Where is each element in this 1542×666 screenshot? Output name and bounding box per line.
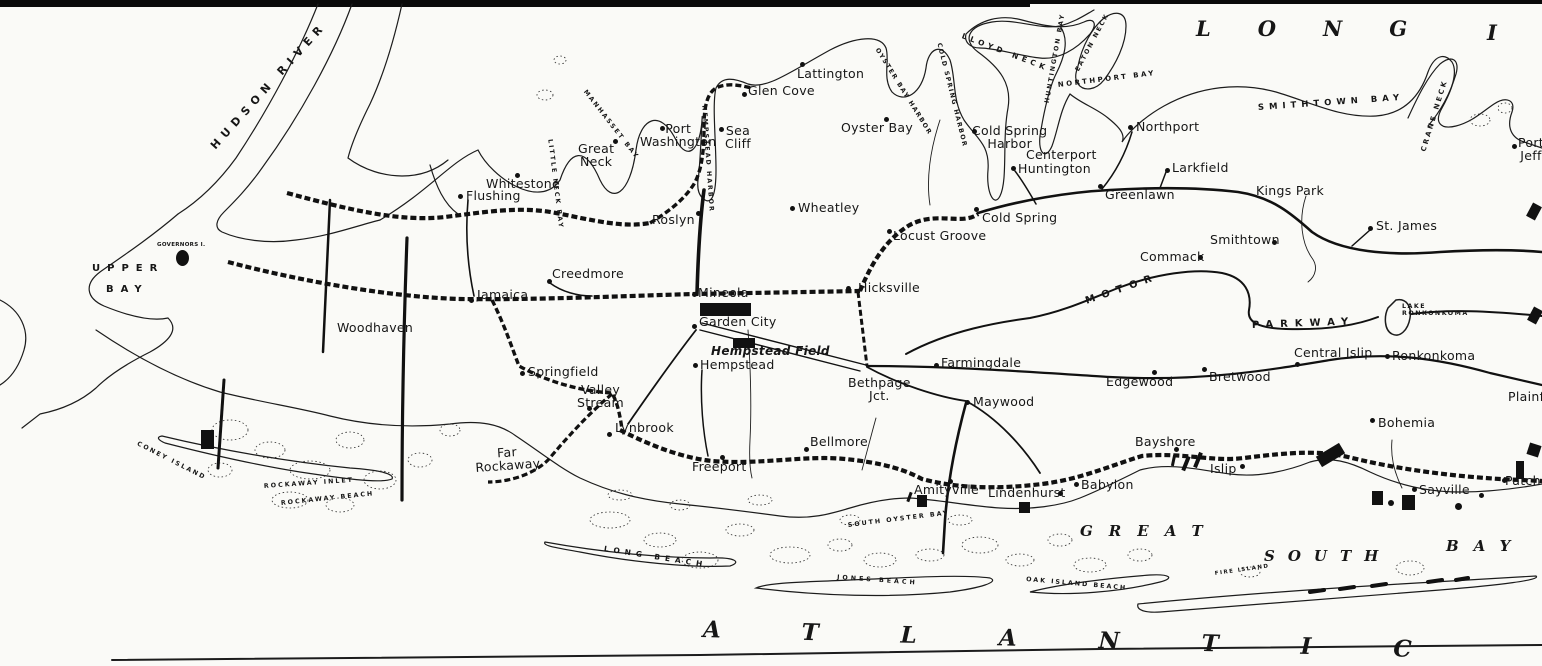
town-dot-locust-grove [887, 229, 892, 234]
map-label-central-islip: Central Islip [1294, 346, 1372, 359]
map-label-oyster-bay: Oyster Bay [841, 121, 913, 134]
map-label-springfield: Springfield [528, 365, 599, 378]
town-dot-northport [1128, 125, 1133, 130]
map-label-bellmore: Bellmore [810, 435, 868, 448]
marker-sayville-circle-1 [1388, 500, 1394, 506]
town-dot-whitestone [515, 173, 520, 178]
marker-sayville-block-2 [1402, 495, 1415, 510]
map-label-cold-spring: Cold Spring [982, 211, 1057, 224]
map-label-garden-city: Garden City [699, 315, 777, 328]
town-dot-cold-spring-harbor [972, 129, 977, 134]
town-dot-cold-spring [974, 207, 979, 212]
map-label-lake-ronkonkoma: LAKE RONKONKOMA [1402, 304, 1469, 317]
marker-governors-island-blob [176, 250, 189, 266]
town-dot-amityville [948, 479, 953, 484]
map-label-whitestone: Whitestone [486, 177, 560, 190]
map-label-lattington: Lattington [797, 67, 864, 80]
town-dot-maywood [965, 400, 970, 405]
map-label-kings-park: Kings Park [1256, 184, 1324, 197]
map-label-wheatley: Wheatley [798, 201, 860, 214]
marker-sayville-circle-2 [1455, 503, 1462, 510]
town-dot-lynbrook [607, 432, 612, 437]
map-label-islip: Islip [1210, 462, 1237, 475]
map-label-governors-island: GOVERNORS I. [157, 243, 205, 249]
map-label-island-title-i: I [1487, 22, 1497, 44]
town-dot-smithtown [1272, 240, 1277, 245]
town-dot-central-islip [1295, 362, 1300, 367]
map-label-upper-bay-2: BAY [106, 285, 149, 296]
town-dot-wheatley [790, 206, 795, 211]
map-label-commack: Commack [1140, 250, 1205, 263]
map-label-far-rockaway: Far Rockaway [474, 443, 541, 474]
map-label-lynbrook: Lynbrook [615, 421, 674, 434]
town-dot-bohemia [1370, 418, 1375, 423]
town-dot-commack [1198, 255, 1203, 260]
town-dot-mineola [692, 292, 697, 297]
long-island-map: FlushingWhitestoneGreat NeckPort Washing… [0, 0, 1542, 666]
marker-patchogue-mark [1516, 461, 1524, 479]
town-dot-hempstead [693, 363, 698, 368]
marker-coney-island-field [201, 430, 214, 449]
map-label-upper-bay-1: UPPER [92, 264, 164, 275]
map-label-south: SOUTH [1264, 549, 1391, 565]
town-dot-sea-cliff [719, 127, 724, 132]
map-label-freeport: Freeport [692, 460, 747, 473]
town-dot-oyster-bay [884, 117, 889, 122]
town-dot-springfield [520, 371, 525, 376]
town-dot-port-jeff [1512, 144, 1517, 149]
town-dot-greenlawn [1098, 184, 1103, 189]
marker-lindenhurst-block [1019, 502, 1030, 513]
map-label-jamaica: Jamaica [477, 288, 528, 301]
map-label-hicksville: Hicksville [858, 281, 920, 294]
map-label-st-james: St. James [1376, 219, 1437, 232]
map-label-port-jeff: Port Jeff [1518, 136, 1542, 162]
town-dot-glen-cove [742, 92, 747, 97]
town-dot-jamaica [469, 298, 474, 303]
map-label-greenlawn: Greenlawn [1105, 188, 1175, 201]
map-label-bretwood: Bretwood [1209, 370, 1271, 383]
map-label-glen-cove: Glen Cove [748, 84, 815, 97]
marker-garden-city-field [700, 303, 751, 316]
town-dot-bellmore [804, 447, 809, 452]
town-dot-edgewood [1152, 370, 1157, 375]
town-dot-ronkonkoma [1385, 354, 1390, 359]
town-dot-lattington [800, 62, 805, 67]
marker-amityville-block [917, 495, 927, 507]
map-label-larkfield: Larkfield [1172, 161, 1229, 174]
map-label-centerport: Centerport [1026, 148, 1097, 161]
map-label-huntington: Huntington [1018, 162, 1091, 175]
town-dot-babylon [1074, 482, 1079, 487]
town-dot-valley-stream [587, 406, 592, 411]
town-dot-islip [1240, 464, 1245, 469]
town-dot-larkfield [1165, 168, 1170, 173]
town-dot-hicksville [846, 286, 851, 291]
map-label-farmingdale: Farmingdale [941, 356, 1021, 369]
town-dot-great-neck [613, 139, 618, 144]
town-dot-huntington [1011, 166, 1016, 171]
map-label-hempstead: Hempstead [700, 358, 775, 371]
marker-sayville-block-1 [1372, 491, 1383, 505]
town-dot-farmingdale [934, 363, 939, 368]
map-label-bayshore: Bayshore [1135, 435, 1196, 448]
town-dot-lindenhurst [1058, 491, 1063, 496]
town-dot-roslyn [696, 211, 701, 216]
map-label-creedmore: Creedmore [552, 267, 624, 280]
map-label-great: GREAT [1080, 524, 1219, 540]
map-label-bethpage-jct: Bethpage Jct. [848, 376, 911, 402]
map-label-edgewood: Edgewood [1106, 375, 1173, 388]
map-label-smithtown: Smithtown [1210, 233, 1280, 246]
town-dot-patchogue [1502, 478, 1507, 483]
town-dot-bayshore [1174, 447, 1179, 452]
map-label-long-title: LONG [1196, 18, 1454, 40]
map-label-locust-grove: Locust Groove [893, 229, 986, 242]
map-label-woodhaven: Woodhaven [337, 321, 413, 334]
map-label-maywood: Maywood [973, 395, 1034, 408]
map-label-sea-cliff: Sea Cliff [725, 124, 751, 150]
map-label-valley-stream: Valley Stream [577, 383, 624, 409]
map-label-ronkonkoma: Ronkonkoma [1392, 349, 1475, 362]
map-label-great-neck: Great Neck [578, 142, 614, 168]
map-label-bay: BAY [1446, 539, 1525, 555]
map-label-plainfield: Plainfield [1508, 390, 1542, 403]
map-label-bohemia: Bohemia [1378, 416, 1435, 429]
map-label-babylon: Babylon [1081, 478, 1134, 491]
marker-hempstead-field-block [733, 338, 755, 348]
map-label-lindenhurst: Lindenhurst [988, 486, 1066, 499]
map-label-mineola: Mineola [698, 286, 749, 299]
map-label-roslyn: Roslyn [652, 213, 695, 226]
map-label-sayville: Sayville [1419, 483, 1470, 496]
town-dot-freeport [720, 455, 725, 460]
town-dot-garden-city [692, 324, 697, 329]
town-dot-sayville-east [1479, 493, 1484, 498]
town-dot-port-washington [660, 126, 665, 131]
town-dot-st-james [1368, 226, 1373, 231]
town-dot-sayville [1412, 487, 1417, 492]
town-dot-creedmore [547, 279, 552, 284]
map-label-hempstead-field: Hempstead Field [711, 345, 830, 358]
town-dot-bretwood [1202, 367, 1207, 372]
map-label-northport: Northport [1136, 120, 1199, 133]
town-dot-flushing [458, 194, 463, 199]
